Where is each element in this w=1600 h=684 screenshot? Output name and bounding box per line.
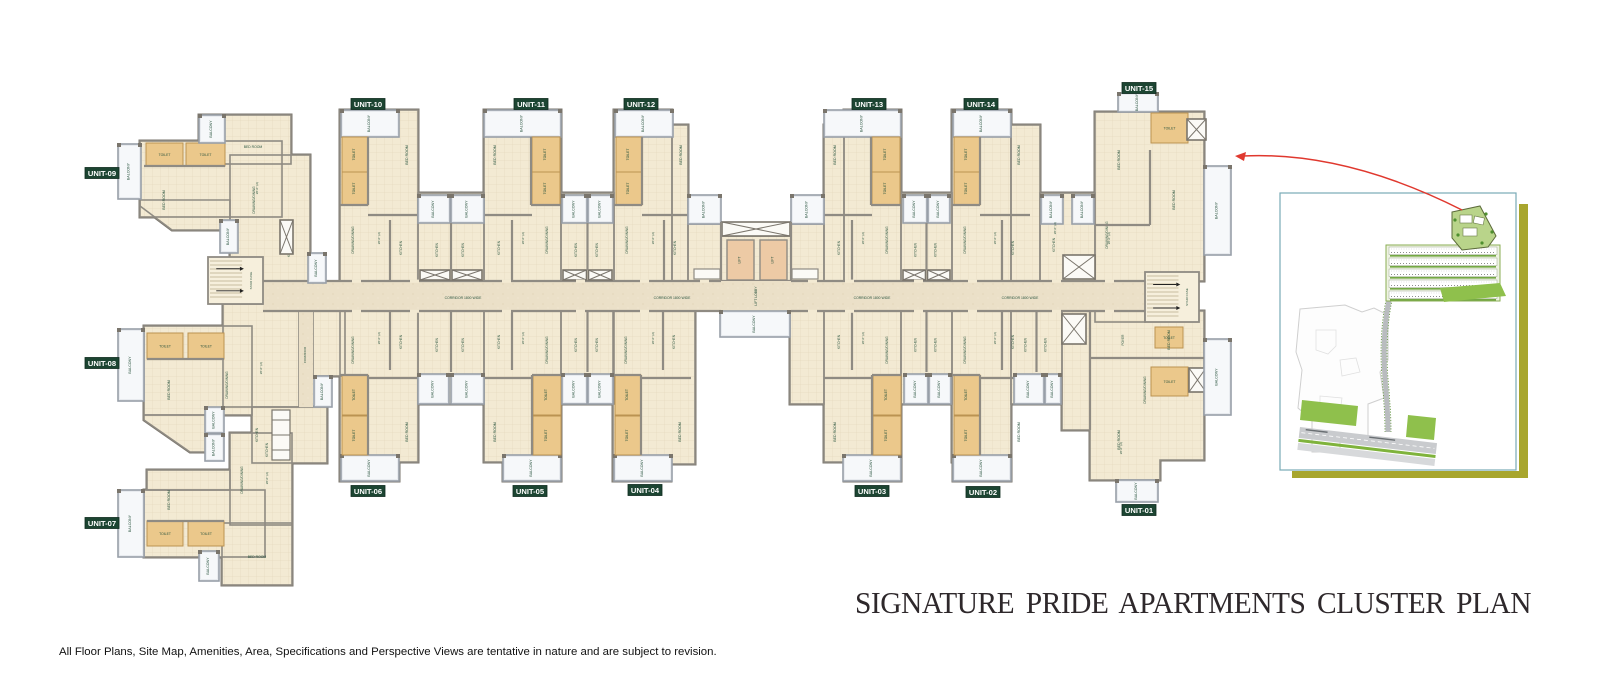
svg-text:DRAWING/DINING: DRAWING/DINING — [351, 336, 355, 364]
svg-text:28'-0" (A): 28'-0" (A) — [861, 232, 865, 244]
svg-text:UNIT-14: UNIT-14 — [967, 100, 996, 109]
svg-text:BALCONY: BALCONY — [979, 114, 983, 132]
svg-text:BALCONY: BALCONY — [206, 557, 210, 575]
svg-text:BALCONY: BALCONY — [520, 114, 524, 132]
svg-text:LIFT LOBBY: LIFT LOBBY — [754, 286, 758, 306]
svg-text:BALCONY: BALCONY — [1026, 380, 1030, 398]
svg-text:DRAWING/DINING: DRAWING/DINING — [225, 371, 229, 399]
svg-text:KITCHEN: KITCHEN — [1052, 237, 1056, 252]
svg-text:TOILET: TOILET — [625, 389, 629, 401]
svg-text:All Floor Plans, Site Map, Ame: All Floor Plans, Site Map, Amenities, Ar… — [59, 646, 717, 658]
svg-text:BED ROOM: BED ROOM — [1017, 145, 1021, 165]
svg-text:BALCONY: BALCONY — [212, 438, 216, 456]
svg-text:BALCONY: BALCONY — [572, 200, 576, 218]
svg-text:BALCONY: BALCONY — [367, 114, 371, 132]
svg-text:TOILET: TOILET — [884, 389, 888, 401]
svg-text:KITCHEN: KITCHEN — [399, 334, 403, 349]
svg-text:BED ROOM: BED ROOM — [248, 555, 267, 559]
svg-text:BALCONY: BALCONY — [752, 315, 756, 333]
svg-text:BALCONY: BALCONY — [128, 514, 132, 532]
svg-text:BALCONY: BALCONY — [431, 380, 435, 398]
svg-text:TOILET: TOILET — [625, 430, 629, 442]
svg-text:UNIT-06: UNIT-06 — [354, 487, 382, 496]
svg-text:BED ROOM: BED ROOM — [1117, 150, 1121, 170]
svg-text:28'-0" (A): 28'-0" (A) — [993, 232, 997, 244]
svg-text:KITCHEN: KITCHEN — [913, 337, 917, 352]
svg-text:TOILET: TOILET — [964, 183, 968, 195]
svg-text:KITCHEN: KITCHEN — [1044, 337, 1048, 352]
svg-text:BALCONY: BALCONY — [805, 200, 809, 218]
svg-text:TOILET: TOILET — [543, 183, 547, 195]
svg-text:TOILET: TOILET — [159, 345, 171, 349]
svg-text:28'-0" (A): 28'-0" (A) — [377, 332, 381, 344]
svg-text:KITCHEN: KITCHEN — [595, 337, 599, 352]
svg-text:KITCHEN: KITCHEN — [265, 442, 269, 457]
svg-text:BALCONY: BALCONY — [1049, 200, 1053, 218]
svg-text:UNIT-01: UNIT-01 — [1125, 506, 1154, 515]
svg-text:BED ROOM: BED ROOM — [678, 422, 682, 442]
svg-text:DRAWING/DINING: DRAWING/DINING — [624, 336, 628, 364]
svg-text:TOILET: TOILET — [964, 389, 968, 401]
svg-text:DRAWING/DINING: DRAWING/DINING — [351, 226, 355, 254]
svg-text:BALCONY: BALCONY — [128, 356, 132, 374]
svg-text:UNIT-07: UNIT-07 — [88, 519, 116, 528]
svg-text:KITCHEN: KITCHEN — [913, 242, 917, 257]
svg-text:28'-0" (A): 28'-0" (A) — [651, 332, 655, 344]
svg-text:TOILET: TOILET — [964, 149, 968, 161]
svg-text:28'-0" (A): 28'-0" (A) — [1119, 442, 1123, 454]
svg-text:BALCONY: BALCONY — [979, 459, 983, 477]
svg-text:TOILET: TOILET — [543, 149, 547, 161]
svg-text:TOILET: TOILET — [544, 430, 548, 442]
svg-text:BALCONY: BALCONY — [598, 380, 602, 398]
svg-text:BALCONY: BALCONY — [529, 459, 533, 477]
svg-text:CORRIDOR 1800 WIDE: CORRIDOR 1800 WIDE — [1002, 296, 1039, 300]
svg-text:BALCONY: BALCONY — [640, 459, 644, 477]
svg-text:BALCONY: BALCONY — [641, 114, 645, 132]
svg-text:28'-0" (A): 28'-0" (A) — [861, 332, 865, 344]
svg-text:KITCHEN: KITCHEN — [497, 334, 501, 349]
svg-text:KITCHEN: KITCHEN — [837, 240, 841, 255]
svg-text:TOILET: TOILET — [544, 389, 548, 401]
svg-text:28'-0" (A): 28'-0" (A) — [255, 182, 259, 194]
svg-text:LIFT: LIFT — [771, 257, 775, 264]
svg-text:CORRIDOR 1800 WIDE: CORRIDOR 1800 WIDE — [445, 296, 482, 300]
svg-text:BALCONY: BALCONY — [1215, 368, 1219, 386]
svg-text:TOILET: TOILET — [352, 389, 356, 401]
svg-text:BALCONY: BALCONY — [572, 380, 576, 398]
svg-text:CORRIDOR: CORRIDOR — [303, 346, 307, 363]
svg-text:KITCHEN: KITCHEN — [399, 240, 403, 255]
svg-text:KITCHEN: KITCHEN — [934, 242, 938, 257]
svg-text:UNIT-13: UNIT-13 — [855, 100, 883, 109]
svg-text:LIFT: LIFT — [738, 257, 742, 264]
svg-text:STAIR CASE: STAIR CASE — [1185, 288, 1189, 306]
svg-text:KITCHEN: KITCHEN — [595, 242, 599, 257]
svg-text:28'-0" (A): 28'-0" (A) — [521, 332, 525, 344]
svg-text:SIGNATURE PRIDE APARTMENTS CLU: SIGNATURE PRIDE APARTMENTS CLUSTER PLAN — [855, 585, 1531, 620]
svg-text:TOILET: TOILET — [352, 183, 356, 195]
svg-text:TOILET: TOILET — [200, 153, 212, 157]
svg-text:KITCHEN: KITCHEN — [574, 337, 578, 352]
svg-text:BALCONY: BALCONY — [212, 411, 216, 429]
svg-text:TOILET: TOILET — [883, 183, 887, 195]
svg-text:BALCONY: BALCONY — [869, 459, 873, 477]
svg-text:BED ROOM: BED ROOM — [405, 145, 409, 165]
svg-text:BALCONY: BALCONY — [226, 227, 230, 245]
svg-text:KITCHEN: KITCHEN — [837, 334, 841, 349]
svg-text:BED ROOM: BED ROOM — [1017, 422, 1021, 442]
svg-text:UNIT-15: UNIT-15 — [1125, 84, 1154, 93]
svg-text:BALCONY: BALCONY — [1134, 482, 1138, 500]
svg-text:DRAWING/DINING: DRAWING/DINING — [885, 336, 889, 364]
svg-text:KITCHEN: KITCHEN — [934, 337, 938, 352]
svg-text:BALCONY: BALCONY — [913, 380, 917, 398]
svg-text:TOILET: TOILET — [884, 430, 888, 442]
svg-text:KITCHEN: KITCHEN — [461, 242, 465, 257]
svg-text:TOILET: TOILET — [883, 149, 887, 161]
svg-text:UNIT-11: UNIT-11 — [517, 100, 546, 109]
svg-text:28'-0" (A): 28'-0" (A) — [651, 232, 655, 244]
svg-text:FOYER: FOYER — [1121, 334, 1125, 346]
svg-text:BED ROOM: BED ROOM — [405, 422, 409, 442]
svg-text:BED ROOM: BED ROOM — [167, 490, 171, 510]
svg-text:BALCONY: BALCONY — [702, 200, 706, 218]
svg-text:UNIT-10: UNIT-10 — [354, 100, 382, 109]
svg-text:BALCONY: BALCONY — [367, 459, 371, 477]
svg-text:BALCONY: BALCONY — [1135, 93, 1139, 111]
svg-text:BALCONY: BALCONY — [912, 200, 916, 218]
svg-text:BED ROOM: BED ROOM — [167, 380, 171, 400]
svg-text:CORRIDOR 1800 WIDE: CORRIDOR 1800 WIDE — [654, 296, 691, 300]
svg-text:BALCONY: BALCONY — [431, 200, 435, 218]
svg-text:BALCONY: BALCONY — [936, 200, 940, 218]
svg-text:STAIR CASE: STAIR CASE — [249, 272, 253, 290]
svg-text:KITCHEN: KITCHEN — [461, 337, 465, 352]
svg-text:UNIT-02: UNIT-02 — [969, 488, 997, 497]
svg-text:DRAWING/DINING: DRAWING/DINING — [1143, 376, 1147, 404]
svg-text:DRAWING/DINING: DRAWING/DINING — [625, 226, 629, 254]
svg-text:TOILET: TOILET — [200, 532, 212, 536]
svg-text:TOILET: TOILET — [964, 430, 968, 442]
svg-text:UNIT-03: UNIT-03 — [858, 487, 886, 496]
svg-text:KITCHEN: KITCHEN — [1011, 334, 1015, 349]
svg-text:TOILET: TOILET — [1164, 127, 1176, 131]
svg-text:KITCHEN: KITCHEN — [435, 242, 439, 257]
svg-text:BED ROOM: BED ROOM — [1172, 190, 1176, 210]
svg-text:UNIT-04: UNIT-04 — [631, 486, 660, 495]
svg-text:BALCONY: BALCONY — [320, 382, 324, 400]
svg-text:KITCHEN: KITCHEN — [574, 242, 578, 257]
svg-text:TOILET: TOILET — [200, 345, 212, 349]
svg-text:KITCHEN: KITCHEN — [673, 240, 677, 255]
svg-text:BED ROOM: BED ROOM — [162, 190, 166, 210]
svg-text:BED ROOM: BED ROOM — [493, 422, 497, 442]
svg-text:BALCONY: BALCONY — [127, 162, 131, 180]
svg-text:BALCONY: BALCONY — [314, 259, 318, 277]
svg-text:TOILET: TOILET — [159, 532, 171, 536]
svg-text:BALCONY: BALCONY — [1080, 200, 1084, 218]
svg-text:UNIT-05: UNIT-05 — [516, 487, 545, 496]
svg-text:28'-0" (A): 28'-0" (A) — [993, 332, 997, 344]
svg-text:KITCHEN: KITCHEN — [672, 334, 676, 349]
svg-text:28'-0" (A): 28'-0" (A) — [1053, 222, 1057, 234]
svg-text:TOILET: TOILET — [626, 183, 630, 195]
svg-text:UNIT-08: UNIT-08 — [88, 359, 116, 368]
svg-text:KITCHEN: KITCHEN — [255, 427, 259, 442]
svg-text:TOILET: TOILET — [352, 430, 356, 442]
svg-text:TOILET: TOILET — [626, 149, 630, 161]
svg-text:BED ROOM: BED ROOM — [1167, 330, 1171, 350]
svg-text:KITCHEN: KITCHEN — [497, 240, 501, 255]
svg-text:UNIT-09: UNIT-09 — [88, 169, 116, 178]
svg-text:BALCONY: BALCONY — [465, 200, 469, 218]
svg-text:BED ROOM: BED ROOM — [833, 422, 837, 442]
svg-text:KITCHEN: KITCHEN — [1011, 240, 1015, 255]
svg-text:CORRIDOR 1800 WIDE: CORRIDOR 1800 WIDE — [854, 296, 891, 300]
svg-text:TOILET: TOILET — [159, 153, 171, 157]
svg-text:BED ROOM: BED ROOM — [679, 145, 683, 165]
svg-text:28'-0" (A): 28'-0" (A) — [377, 232, 381, 244]
svg-text:BALCONY: BALCONY — [209, 120, 213, 138]
svg-text:BED ROOM: BED ROOM — [244, 145, 263, 149]
svg-text:KITCHEN: KITCHEN — [435, 337, 439, 352]
svg-text:BALCONY: BALCONY — [465, 380, 469, 398]
svg-text:28'-0" (A): 28'-0" (A) — [265, 472, 269, 484]
svg-text:DRAWING/DINING: DRAWING/DINING — [885, 226, 889, 254]
svg-text:BALCONY: BALCONY — [1050, 380, 1054, 398]
svg-text:BALCONY: BALCONY — [598, 200, 602, 218]
svg-text:BED ROOM: BED ROOM — [833, 145, 837, 165]
svg-text:BALCONY: BALCONY — [860, 114, 864, 132]
svg-text:DRAWING/DINING: DRAWING/DINING — [545, 226, 549, 254]
svg-text:DRAWING/DINING: DRAWING/DINING — [963, 336, 967, 364]
svg-text:DRAWING/DINING: DRAWING/DINING — [545, 336, 549, 364]
svg-text:28'-0" (A): 28'-0" (A) — [521, 232, 525, 244]
svg-text:28'-0" (A): 28'-0" (A) — [259, 362, 263, 374]
svg-text:KITCHEN: KITCHEN — [1023, 337, 1027, 352]
svg-text:DRAWING/DINING: DRAWING/DINING — [240, 466, 244, 494]
svg-text:UNIT-12: UNIT-12 — [627, 100, 655, 109]
svg-text:BALCONY: BALCONY — [937, 380, 941, 398]
svg-text:TOILET: TOILET — [1164, 380, 1176, 384]
svg-text:TOILET: TOILET — [352, 149, 356, 161]
svg-text:BALCONY: BALCONY — [1215, 201, 1219, 219]
svg-text:BED ROOM: BED ROOM — [493, 145, 497, 165]
svg-text:28'-0" (A): 28'-0" (A) — [1107, 232, 1111, 244]
svg-text:DRAWING/DINING: DRAWING/DINING — [963, 226, 967, 254]
